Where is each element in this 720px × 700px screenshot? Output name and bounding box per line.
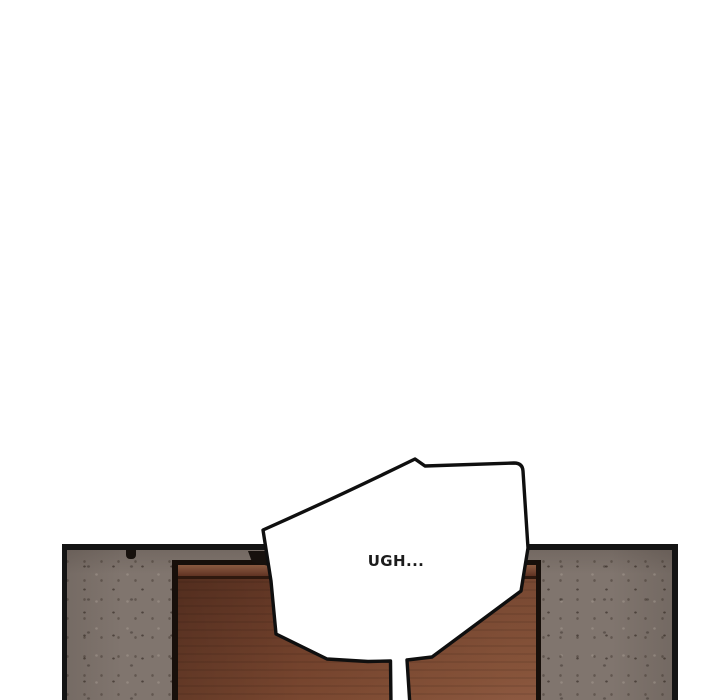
- webtoon-page: UGH...: [0, 0, 720, 700]
- speech-bubble: [0, 0, 720, 700]
- speech-bubble-shape: [263, 459, 528, 700]
- speech-bubble-text: UGH...: [348, 550, 444, 572]
